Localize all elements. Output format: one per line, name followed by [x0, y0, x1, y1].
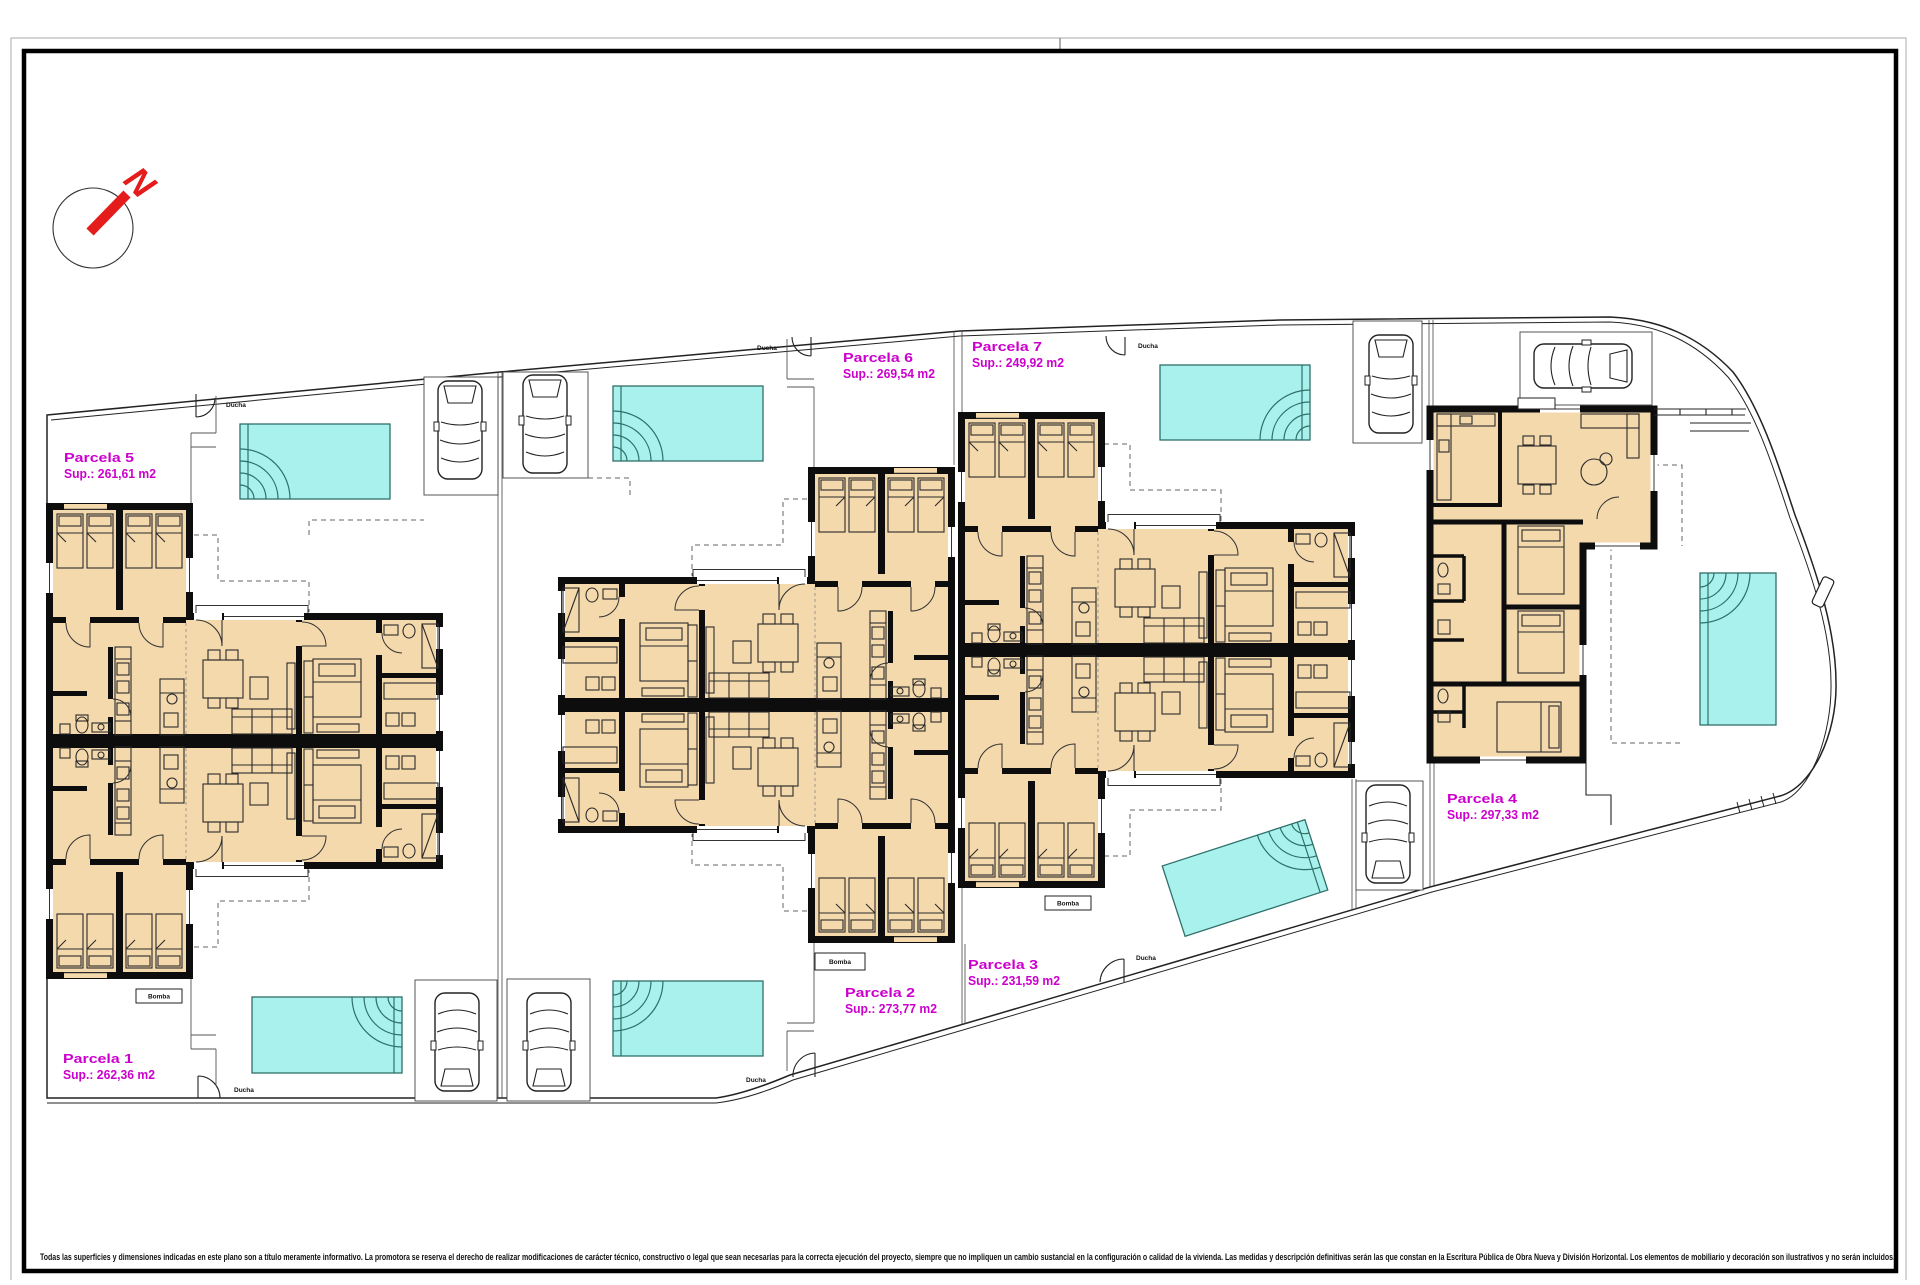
svg-text:Bomba: Bomba: [829, 959, 851, 966]
svg-text:Sup.: 269,54 m2: Sup.: 269,54 m2: [843, 366, 935, 381]
svg-text:Sup.: 273,77 m2: Sup.: 273,77 m2: [845, 1001, 937, 1016]
svg-text:Sup.: 297,33 m2: Sup.: 297,33 m2: [1447, 807, 1539, 822]
svg-text:Ducha: Ducha: [746, 1077, 766, 1084]
svg-text:Todas las superficies y dimens: Todas las superficies y dimensiones indi…: [40, 1252, 1895, 1263]
svg-text:Ducha: Ducha: [234, 1087, 254, 1094]
svg-text:Sup.: 262,36 m2: Sup.: 262,36 m2: [63, 1067, 155, 1082]
svg-text:Bomba: Bomba: [1057, 901, 1079, 908]
svg-text:Parcela 7: Parcela 7: [972, 339, 1042, 354]
svg-text:Parcela 2: Parcela 2: [845, 985, 915, 1000]
svg-text:Ducha: Ducha: [1136, 955, 1156, 962]
svg-text:Ducha: Ducha: [757, 345, 777, 352]
svg-text:Ducha: Ducha: [226, 402, 246, 409]
svg-text:Parcela 3: Parcela 3: [968, 957, 1038, 972]
svg-text:Sup.: 249,92 m2: Sup.: 249,92 m2: [972, 355, 1064, 370]
svg-text:Sup.: 231,59 m2: Sup.: 231,59 m2: [968, 973, 1060, 988]
svg-text:Parcela 6: Parcela 6: [843, 350, 913, 365]
svg-text:Parcela 5: Parcela 5: [64, 450, 134, 465]
svg-text:Parcela 4: Parcela 4: [1447, 791, 1518, 806]
svg-text:Ducha: Ducha: [1138, 343, 1158, 350]
svg-text:Sup.: 261,61 m2: Sup.: 261,61 m2: [64, 466, 156, 481]
svg-text:Parcela 1: Parcela 1: [63, 1051, 133, 1066]
svg-text:Bomba: Bomba: [148, 994, 170, 1001]
